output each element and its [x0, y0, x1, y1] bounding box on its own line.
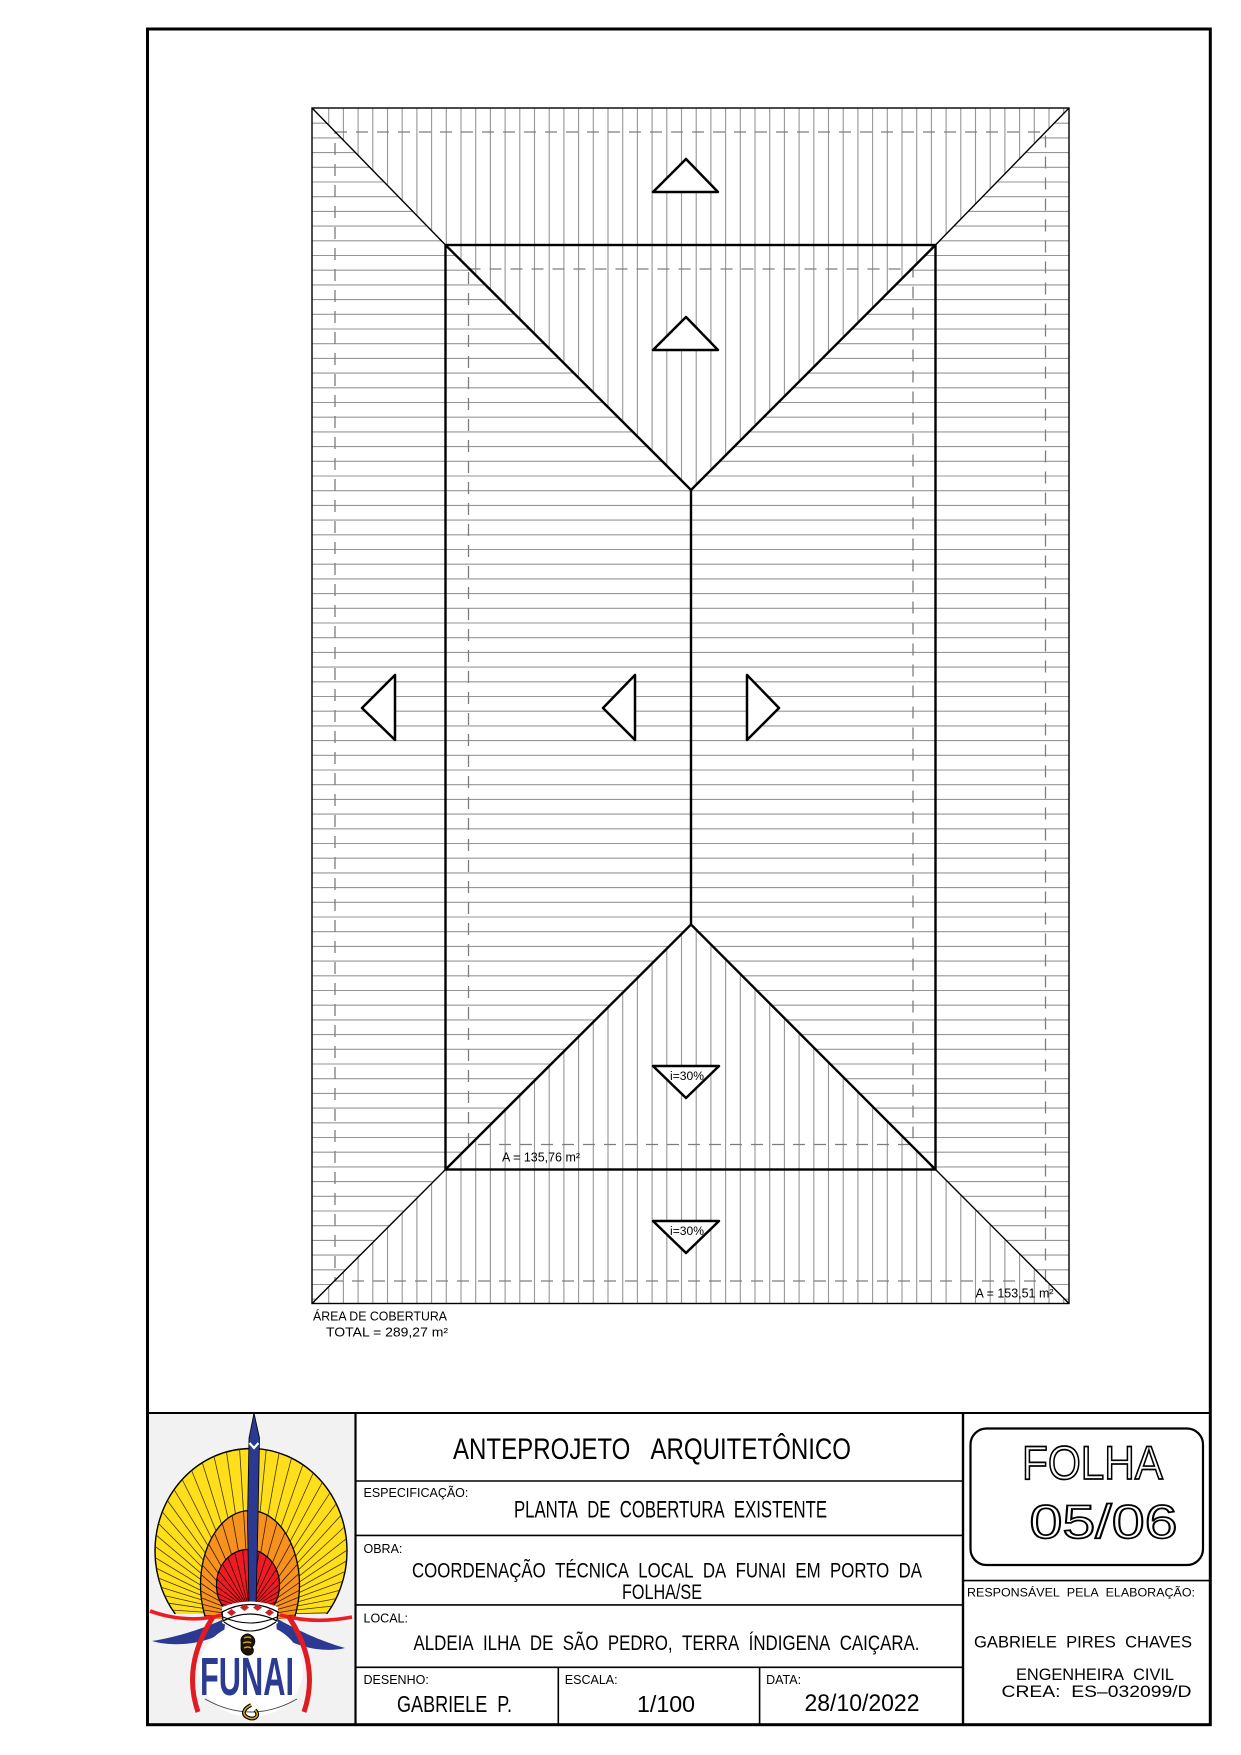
- svg-text:i=30%: i=30%: [670, 1071, 704, 1083]
- svg-text:OBRA:: OBRA:: [364, 1542, 403, 1556]
- svg-text:DESENHO:: DESENHO:: [364, 1673, 429, 1687]
- svg-text:COORDENAÇÃO TÉCNICA LOCAL D: COORDENAÇÃO TÉCNICA LOCAL DA FUNAI EM PO…: [412, 1557, 923, 1582]
- svg-text:1/100: 1/100: [637, 1691, 695, 1717]
- svg-text:ESCALA:: ESCALA:: [565, 1673, 618, 1687]
- svg-text:DATA:: DATA:: [766, 1673, 801, 1687]
- svg-text:ESPECIFICAÇÃO:: ESPECIFICAÇÃO:: [364, 1486, 469, 1500]
- svg-text:A = 153,51 m²: A = 153,51 m²: [976, 1287, 1054, 1301]
- svg-text:i=30%: i=30%: [670, 1226, 704, 1238]
- svg-text:GABRIELE PIRES CHAVES: GABRIELE PIRES CHAVES: [974, 1632, 1192, 1651]
- svg-text:GABRIELE P.: GABRIELE P.: [397, 1691, 512, 1717]
- svg-text:CREA: ES–032099/D: CREA: ES–032099/D: [1002, 1682, 1192, 1701]
- svg-text:LOCAL:: LOCAL:: [364, 1611, 408, 1625]
- svg-text:FOLHA: FOLHA: [1022, 1436, 1164, 1489]
- svg-text:ÁREA DE COBERTURA: ÁREA DE COBERTURA: [313, 1309, 447, 1324]
- svg-text:FOLHA/SE: FOLHA/SE: [622, 1580, 702, 1604]
- svg-text:RESPONSÁVEL PELA ELABORAÇÃO:: RESPONSÁVEL PELA ELABORAÇÃO:: [967, 1584, 1195, 1599]
- svg-text:ALDEIA ILHA DE SÃO PEDRO,: ALDEIA ILHA DE SÃO PEDRO, TERRA ÍNDIGENA…: [414, 1630, 920, 1655]
- svg-text:PLANTA DE COBERTURA EXISTEN: PLANTA DE COBERTURA EXISTENTE: [514, 1497, 827, 1524]
- svg-text:28/10/2022: 28/10/2022: [805, 1690, 920, 1717]
- svg-text:FUNAI: FUNAI: [200, 1647, 294, 1707]
- svg-text:05/06: 05/06: [1030, 1495, 1178, 1548]
- svg-text:TOTAL = 289,27 m²: TOTAL = 289,27 m²: [326, 1325, 449, 1340]
- svg-text:A = 135,76 m²: A = 135,76 m²: [502, 1151, 580, 1165]
- svg-text:ANTEPROJETO ARQUITETÔNICO: ANTEPROJETO ARQUITETÔNICO: [453, 1432, 851, 1466]
